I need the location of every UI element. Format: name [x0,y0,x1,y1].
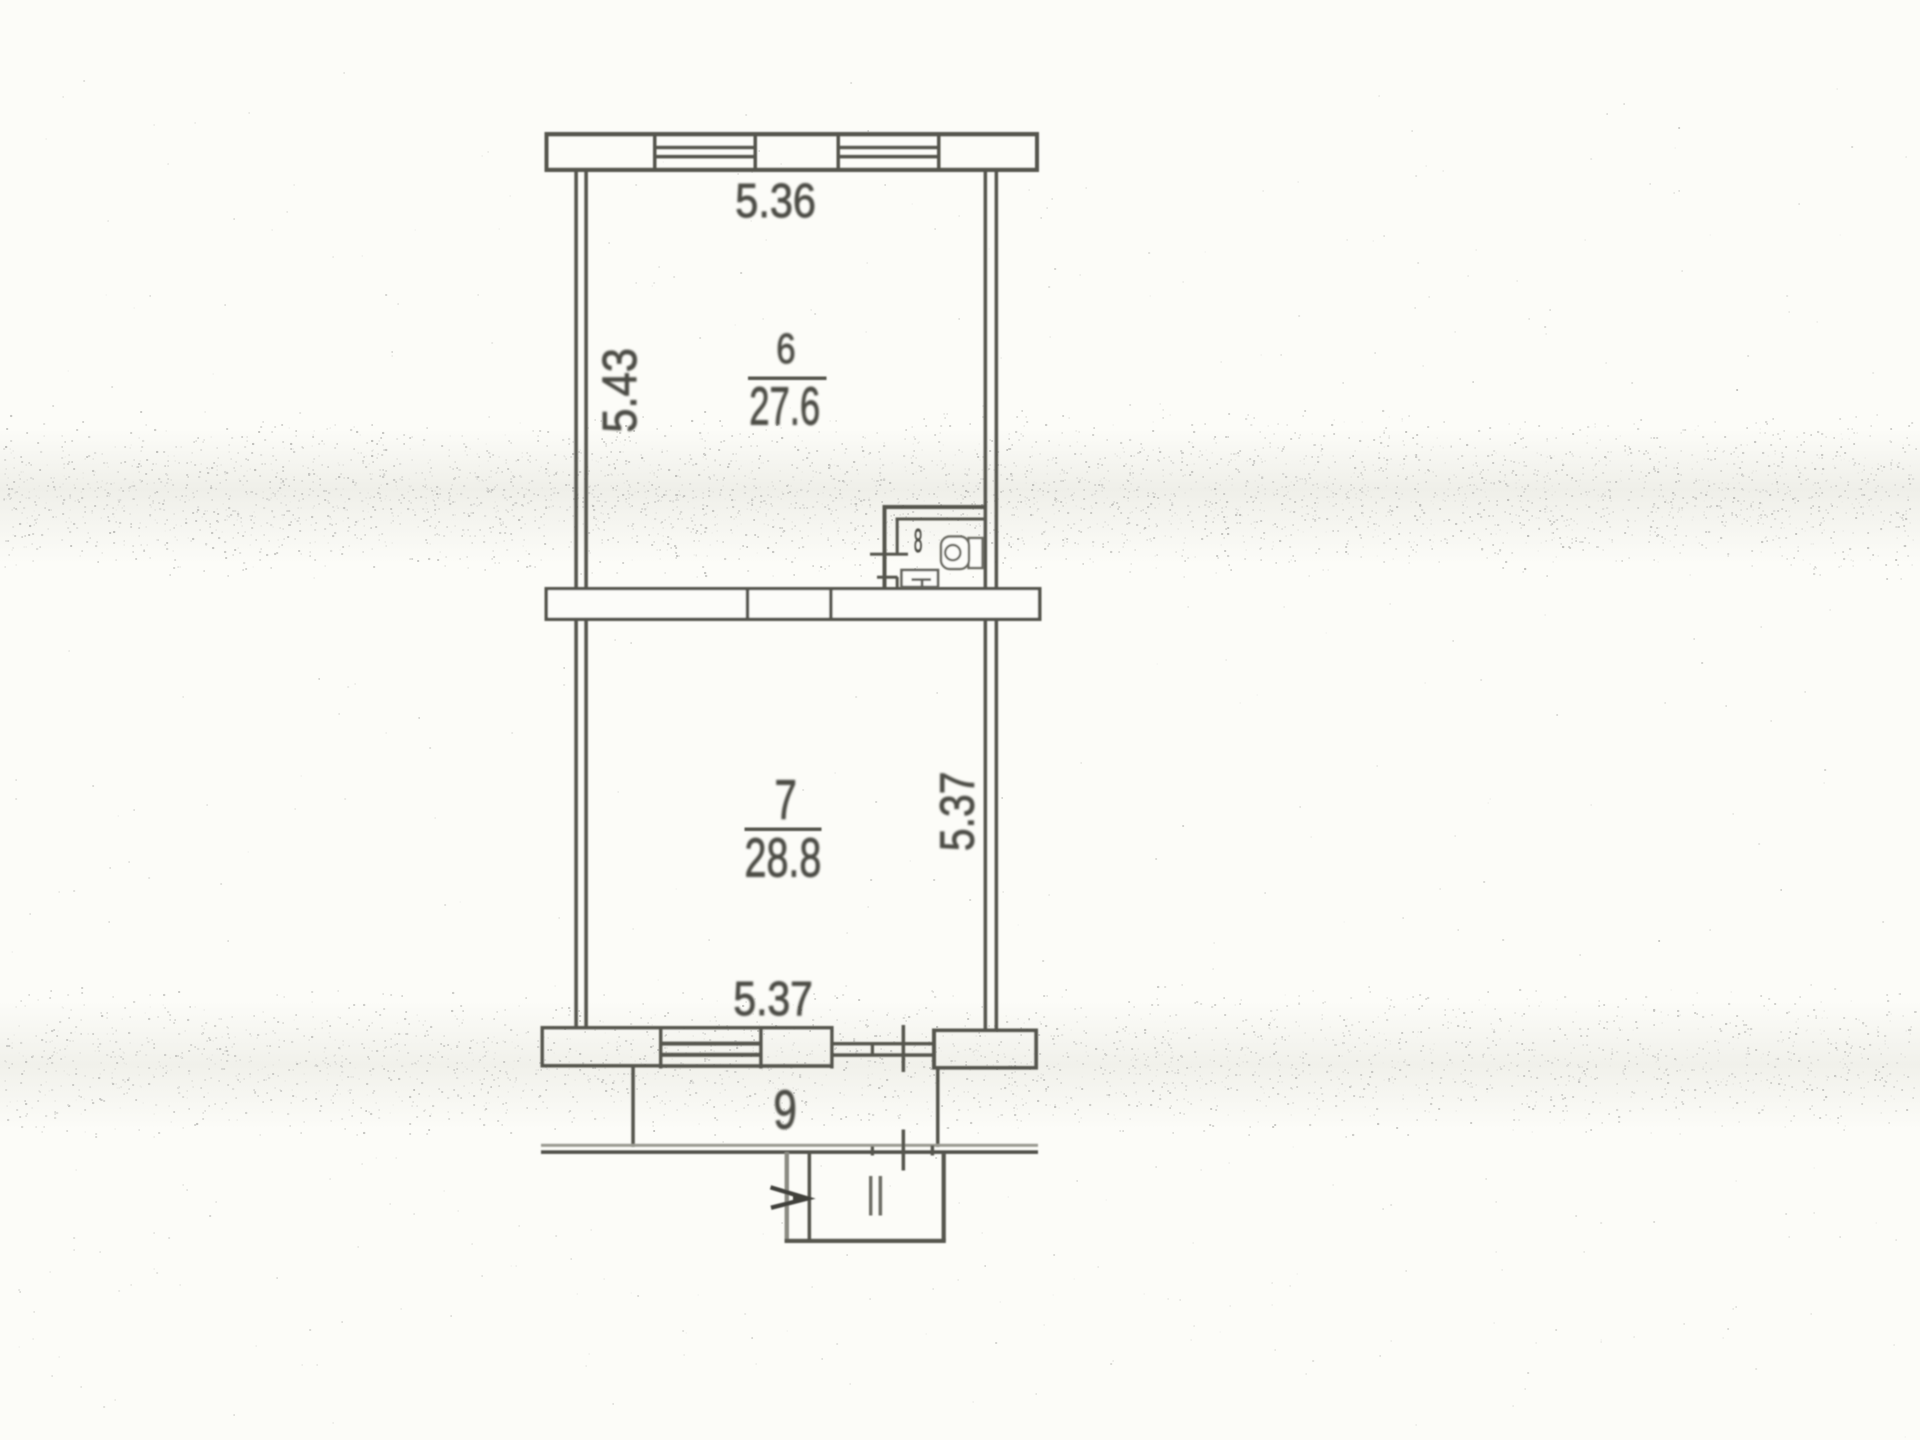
svg-text:6: 6 [776,325,795,372]
svg-text:9: 9 [773,1079,797,1141]
svg-text:5.36: 5.36 [735,174,816,228]
svg-text:7: 7 [775,768,797,831]
svg-text:27.6: 27.6 [749,378,820,437]
svg-text:28.8: 28.8 [745,827,822,889]
svg-text:5.43: 5.43 [594,348,647,433]
svg-text:5.37: 5.37 [931,772,985,852]
svg-text:8: 8 [914,523,923,560]
svg-text:5.37: 5.37 [733,972,813,1026]
